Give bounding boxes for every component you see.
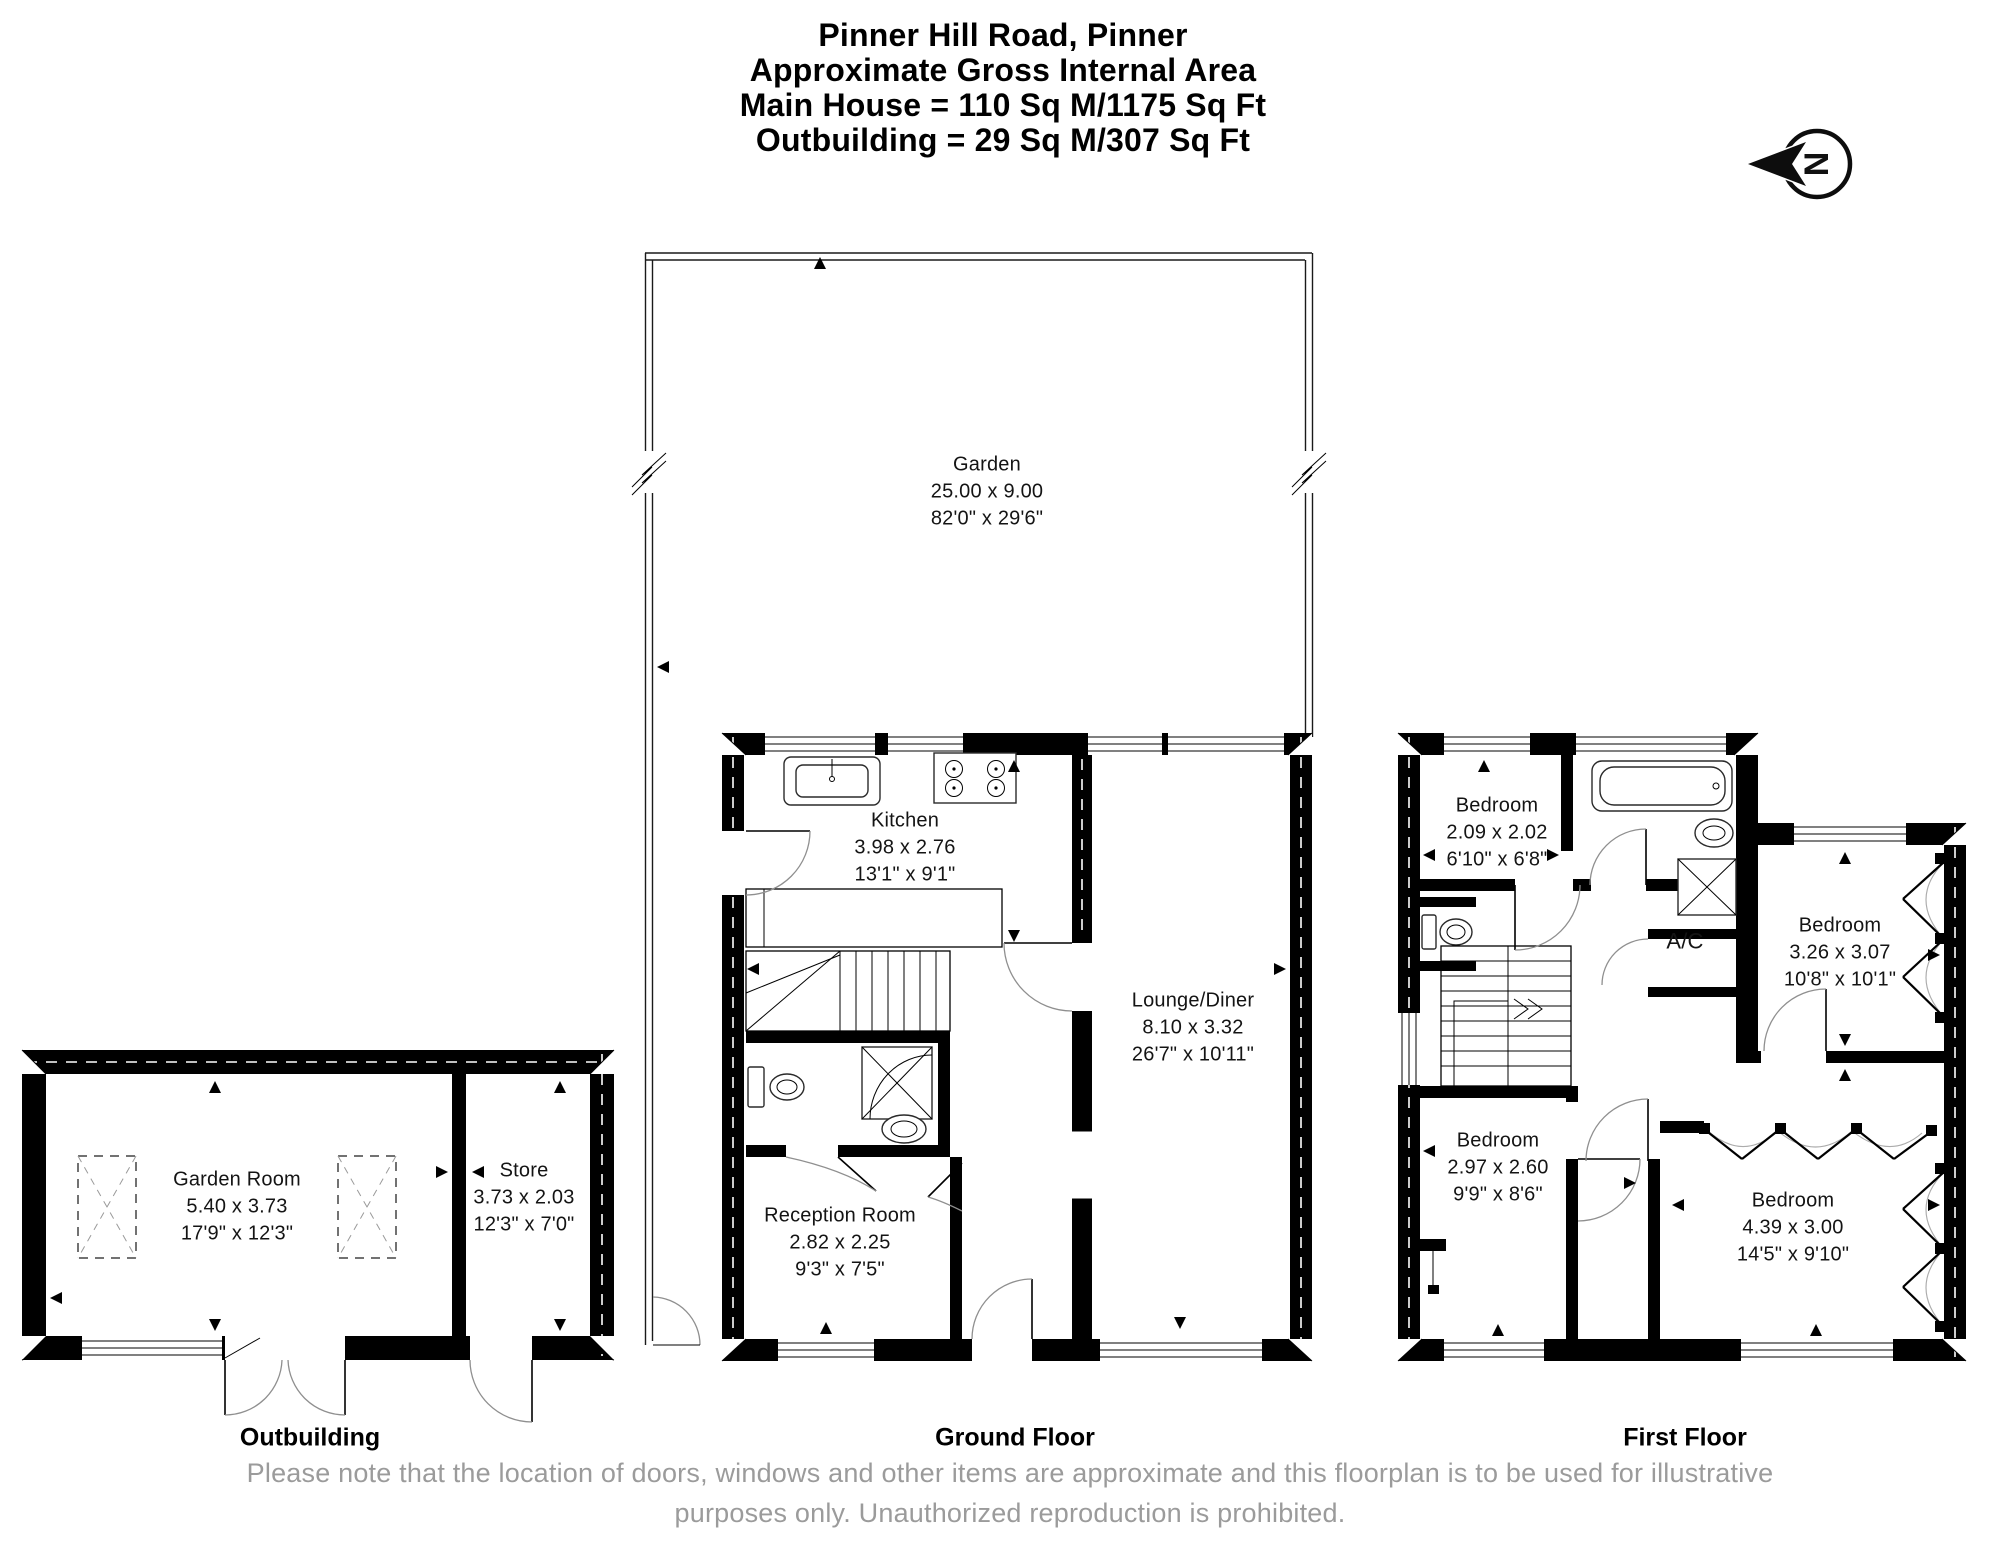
kitchen-sink-icon <box>784 757 880 805</box>
boundary-break-left <box>632 451 666 495</box>
side-door-opening <box>722 831 744 895</box>
room-label-kitchen: Kitchen 3.98 x 2.76 13'1" x 9'1" <box>854 808 955 889</box>
title-main-house-area: Main House = 110 Sq M/1175 Sq Ft <box>503 88 1503 123</box>
caption-ground-floor: Ground Floor <box>935 1424 1095 1453</box>
room-label-bedroom-2: Bedroom 3.26 x 3.07 10'8" x 10'1" <box>1784 913 1896 994</box>
hob-icon <box>934 753 1016 803</box>
bathtub-icon <box>1592 761 1732 811</box>
worktop <box>746 889 1002 947</box>
wardrobe-bedroom4-right <box>1903 1163 1946 1332</box>
room-label-lounge-diner: Lounge/Diner 8.10 x 3.32 26'7" x 10'11" <box>1132 988 1255 1069</box>
boundary-break-right <box>1292 451 1326 495</box>
title-outbuilding-area: Outbuilding = 29 Sq M/307 Sq Ft <box>503 123 1503 158</box>
basin-icon <box>1695 819 1733 847</box>
title-block: Pinner Hill Road, Pinner Approximate Gro… <box>503 18 1503 158</box>
toilet-icon <box>748 1067 804 1107</box>
title-address: Pinner Hill Road, Pinner <box>503 18 1503 53</box>
room-label-bedroom-4: Bedroom 4.39 x 3.00 14'5" x 9'10" <box>1737 1188 1849 1269</box>
front-door-opening <box>972 1339 1032 1361</box>
disclaimer-line-2: purposes only. Unauthorized reproduction… <box>675 1498 1346 1529</box>
staircase <box>746 951 950 1031</box>
wardrobe-bedroom2 <box>1903 853 1946 1023</box>
title-area-heading: Approximate Gross Internal Area <box>503 53 1503 88</box>
room-label-bedroom-1: Bedroom 2.09 x 2.02 6'10" x 6'8" <box>1446 793 1547 874</box>
rooflight-icon <box>78 1156 136 1258</box>
caption-outbuilding: Outbuilding <box>240 1424 380 1453</box>
room-label-store: Store 3.73 x 2.03 12'3" x 7'0" <box>473 1158 574 1239</box>
north-compass: N <box>1738 108 1902 220</box>
marker-arrow <box>814 257 826 269</box>
outbuilding-doors <box>225 1360 532 1422</box>
shower-icon <box>1678 859 1736 915</box>
toilet-icon <box>1422 915 1472 949</box>
room-label-ac: A/C <box>1666 928 1703 955</box>
room-label-reception: Reception Room 2.82 x 2.25 9'3" x 7'5" <box>764 1203 916 1284</box>
room-label-garden-room: Garden Room 5.40 x 3.73 17'9" x 12'3" <box>173 1167 301 1248</box>
disclaimer-line-1: Please note that the location of doors, … <box>247 1458 1774 1489</box>
rooflight-icon <box>338 1156 396 1258</box>
caption-first-floor: First Floor <box>1623 1424 1747 1453</box>
room-label-garden: Garden 25.00 x 9.00 82'0" x 29'6" <box>931 452 1044 533</box>
shower-icon <box>862 1047 932 1119</box>
basin-icon <box>882 1115 926 1143</box>
wardrobe-bedroom4-top <box>1699 1123 1937 1159</box>
marker-arrow <box>657 661 669 673</box>
room-label-bedroom-3: Bedroom 2.97 x 2.60 9'9" x 8'6" <box>1447 1128 1548 1209</box>
side-gate-arc <box>653 1297 700 1345</box>
compass-north-letter: N <box>1798 147 1836 181</box>
flue-detail <box>1428 1251 1439 1294</box>
floorplan-document: { "title": { "line1": "Pinner Hill Road,… <box>0 0 2000 1545</box>
